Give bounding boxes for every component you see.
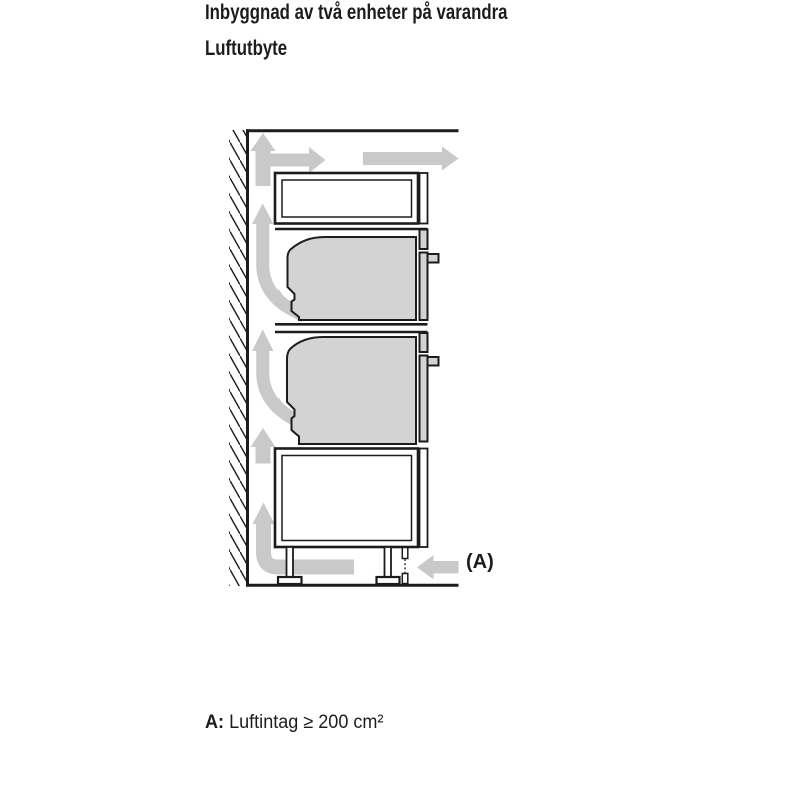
upper-oven <box>288 230 439 321</box>
air-intake-arrow-icon <box>417 555 459 580</box>
lower-oven <box>287 333 439 444</box>
wall-hatch <box>229 130 247 586</box>
caption: A: Luftintag ≥ 200 cm² <box>205 713 393 732</box>
air-intake-marker <box>402 548 408 584</box>
caption-prefix: A: <box>205 712 224 733</box>
installation-diagram <box>0 0 800 800</box>
airflow-right-arrow-long-icon <box>363 147 459 171</box>
lower-oven-handle <box>428 357 439 366</box>
air-intake-label: (A) <box>466 552 494 572</box>
middle-shelf <box>275 324 428 332</box>
caption-text: Luftintag ≥ 200 cm² <box>229 712 383 733</box>
upper-oven-handle <box>428 254 439 263</box>
airflow-up-arrow-mid-icon <box>251 428 276 464</box>
manual-page: Inbyggnad av två enheter på varandra Luf… <box>0 0 800 800</box>
bottom-cabinet-compartment <box>275 449 428 548</box>
top-cabinet-compartment <box>275 173 428 229</box>
